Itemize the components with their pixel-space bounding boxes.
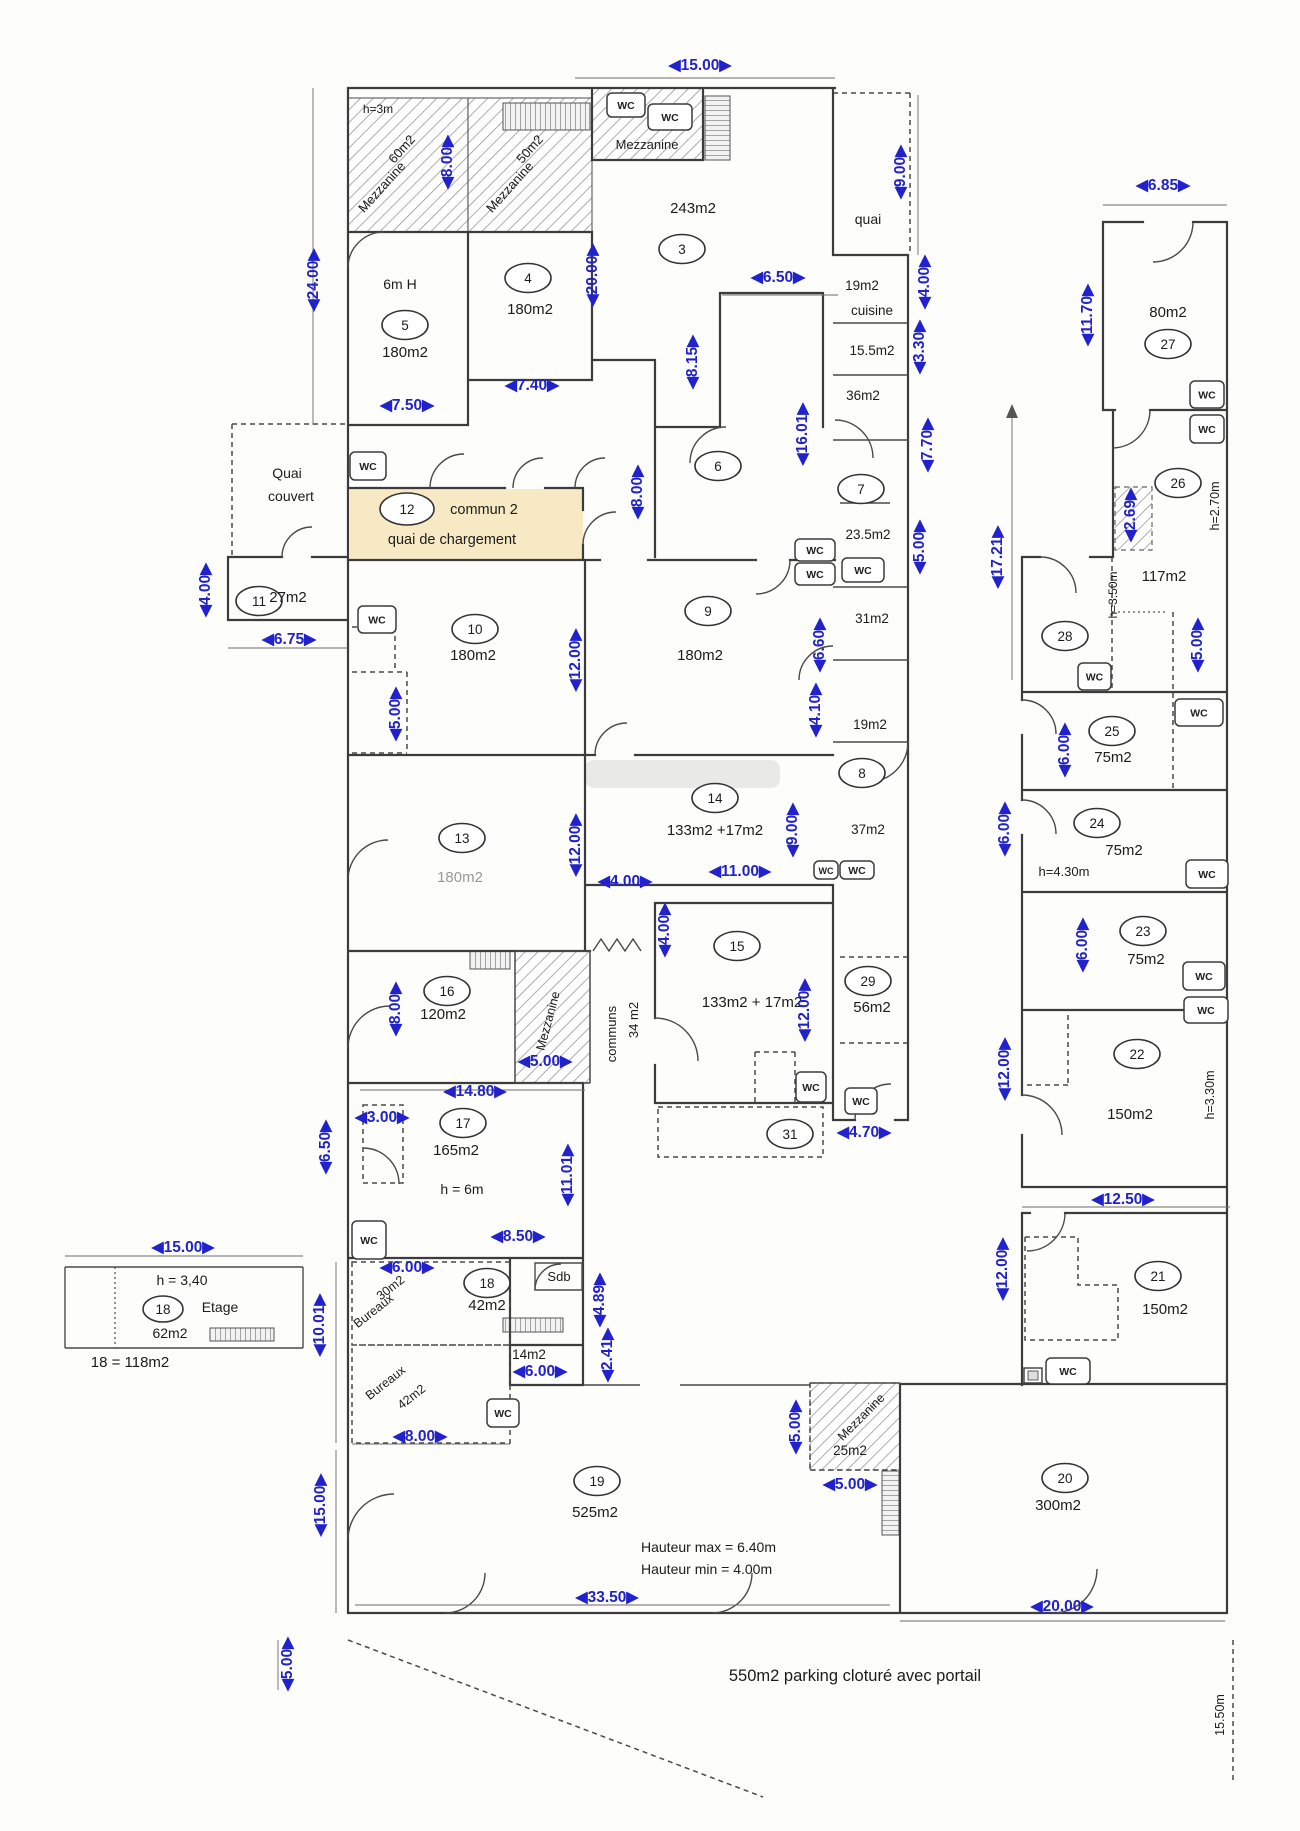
- dimension-label: ◀24.00▶: [305, 248, 322, 313]
- dimension-label: ◀5.00▶: [517, 1053, 573, 1070]
- dimension-label: ◀16.01▶: [794, 402, 811, 467]
- room-number: 9: [704, 604, 712, 619]
- wc-label: WC: [1059, 1366, 1077, 1378]
- plan-label: Hauteur max = 6.40m: [641, 1539, 776, 1555]
- dimension-label: ◀6.00▶: [1056, 722, 1073, 778]
- plan-label: 42m2: [395, 1382, 428, 1412]
- wc-label: WC: [852, 1096, 870, 1108]
- dimension-label: ◀6.50▶: [317, 1119, 334, 1175]
- arrow-head: [1006, 404, 1018, 418]
- plan-label: 56m2: [853, 999, 891, 1016]
- dimension-label: ◀3.00▶: [354, 1109, 410, 1126]
- dimension-label: ◀9.00▶: [784, 802, 801, 858]
- dimension-label: ◀12.00▶: [994, 1237, 1011, 1302]
- stairs-icon: [705, 96, 730, 160]
- plan-label: h=3.50m: [1106, 571, 1120, 618]
- stairs-icon: [470, 951, 510, 969]
- room-number: 14: [707, 791, 723, 806]
- room-number: 7: [857, 482, 865, 497]
- dimension-label: ◀6.00▶: [379, 1259, 435, 1276]
- plan-label: 37m2: [851, 822, 885, 837]
- dimension-label: ◀12.00▶: [996, 1037, 1013, 1102]
- plan-label: 15.50m: [1213, 1694, 1227, 1736]
- plan-label: commun 2: [450, 502, 518, 518]
- dimension-label: ◀8.00▶: [629, 464, 646, 520]
- dimension-label: ◀8.00▶: [392, 1428, 448, 1445]
- plan-label: Bureaux: [351, 1291, 397, 1331]
- room-number: 6: [714, 459, 722, 474]
- plan-label: communs: [604, 1005, 619, 1062]
- dimension-label: ◀12.00▶: [567, 813, 584, 878]
- dimension-label: ◀6.85▶: [1135, 177, 1191, 194]
- dimension-label: ◀6.50▶: [750, 269, 806, 286]
- plan-label: 18 = 118m2: [91, 1354, 170, 1371]
- wc-label: WC: [848, 865, 866, 877]
- room-number: 4: [524, 271, 532, 286]
- room-number: 18: [479, 1276, 494, 1291]
- plan-label: couvert: [268, 488, 314, 504]
- plan-label: h = 6m: [440, 1181, 483, 1197]
- wc-label: WC: [661, 112, 679, 124]
- plan-label: 165m2: [433, 1142, 479, 1159]
- dimension-label: ◀6.75▶: [261, 631, 317, 648]
- fixture-box-inner: [1028, 1371, 1038, 1380]
- dimension-label: ◀17.21▶: [989, 525, 1006, 590]
- plan-label: 133m2 +17m2: [667, 822, 763, 839]
- plan-label: 75m2: [1127, 951, 1165, 968]
- plan-label: 15.5m2: [849, 343, 894, 358]
- plan-label: 14m2: [512, 1347, 546, 1362]
- plan-label: h = 3,40: [157, 1272, 208, 1288]
- dimension-label: ◀4.89▶: [591, 1272, 608, 1328]
- wc-label: WC: [806, 569, 824, 581]
- plan-label: 19m2: [845, 278, 879, 293]
- room-number: 31: [782, 1127, 797, 1142]
- room-number: 18: [155, 1302, 170, 1317]
- plan-label: 180m2: [507, 301, 553, 318]
- dimension-label: ◀4.70▶: [836, 1124, 892, 1141]
- wc-label: WC: [1198, 424, 1216, 436]
- dimension-label: ◀11.00▶: [708, 863, 772, 880]
- dimension-label: ◀6.00▶: [996, 801, 1013, 857]
- plan-label: cuisine: [851, 303, 893, 318]
- dimension-label: ◀20.00▶: [584, 243, 601, 308]
- dimension-label: ◀5.00▶: [822, 1476, 878, 1493]
- plan-label: 27m2: [269, 589, 307, 606]
- plan-label: 243m2: [670, 200, 716, 217]
- plan-label: 62m2: [152, 1325, 187, 1341]
- walls-dotted: [115, 612, 1168, 1348]
- plan-label: 80m2: [1149, 304, 1187, 321]
- room-number: 17: [455, 1116, 470, 1131]
- dimension-label: ◀5.00▶: [387, 686, 404, 742]
- plan-label: h=3m: [363, 102, 393, 116]
- dimension-label: ◀4.00▶: [656, 902, 673, 958]
- room-number: 23: [1135, 924, 1150, 939]
- plan-label: 133m2 + 17m2: [702, 994, 802, 1011]
- wc-label: WC: [1197, 1005, 1215, 1017]
- plan-label: 23.5m2: [845, 527, 890, 542]
- plan-label: 31m2: [855, 611, 889, 626]
- wc-label: WC: [819, 866, 834, 876]
- dimension-label: ◀4.10▶: [807, 682, 824, 738]
- room-number: 22: [1129, 1047, 1144, 1062]
- room-number: 26: [1170, 476, 1185, 491]
- plan-label: 25m2: [833, 1443, 867, 1458]
- room-number: 10: [467, 622, 482, 637]
- wc-label: WC: [360, 1235, 378, 1247]
- room-number: 5: [401, 318, 409, 333]
- plan-label: 34 m2: [626, 1002, 641, 1038]
- plan-label: 150m2: [1107, 1106, 1153, 1123]
- door-arcs: [282, 222, 1193, 1613]
- room-number: 29: [860, 974, 875, 989]
- plan-label: Hauteur min = 4.00m: [641, 1561, 772, 1577]
- dimension-label: ◀2.41▶: [599, 1327, 616, 1383]
- dimension-label: ◀10.01▶: [311, 1293, 328, 1358]
- dimension-label: ◀5.00▶: [911, 519, 928, 575]
- dimension-label: ◀9.00▶: [892, 144, 909, 200]
- dimension-label: ◀6.00▶: [1074, 917, 1091, 973]
- room-number: 25: [1104, 724, 1119, 739]
- dimension-label: ◀8.15▶: [684, 334, 701, 390]
- room-number: 24: [1089, 816, 1105, 831]
- dimension-label: ◀8.50▶: [490, 1228, 546, 1245]
- dimension-label: ◀12.00▶: [567, 628, 584, 693]
- dimension-label: ◀7.70▶: [919, 417, 936, 473]
- plan-label: 525m2: [572, 1504, 618, 1521]
- stairs-icon: [210, 1328, 274, 1341]
- dimension-label: ◀4.00▶: [597, 873, 653, 890]
- dimension-label: ◀15.00▶: [151, 1239, 216, 1256]
- wc-label: WC: [806, 545, 824, 557]
- plan-label: 42m2: [468, 1297, 506, 1314]
- dimension-label: ◀12.00▶: [796, 978, 813, 1043]
- floor-plan-page: WCWCWCWCWCWCWCWCWCWCWCWCWCWCWCWCWCWCWCWC…: [0, 0, 1300, 1831]
- wc-label: WC: [359, 461, 377, 473]
- plan-label: Etage: [202, 1299, 239, 1315]
- dimension-label: ◀20.00▶: [1030, 1598, 1095, 1615]
- dimension-label: ◀14.80▶: [443, 1083, 508, 1100]
- dimension-label: ◀5.00▶: [787, 1399, 804, 1455]
- plan-label: 180m2: [437, 869, 483, 886]
- room-number: 28: [1057, 629, 1072, 644]
- plan-label: 75m2: [1094, 749, 1132, 766]
- dimension-label: ◀7.50▶: [379, 397, 435, 414]
- dimension-label: ◀15.00▶: [312, 1473, 329, 1538]
- walls-partitions: [65, 323, 908, 1385]
- dimension-label: ◀8.00▶: [387, 981, 404, 1037]
- plan-label: Quai: [272, 465, 302, 481]
- wc-label: WC: [494, 1408, 512, 1420]
- plan-label: 75m2: [1105, 842, 1143, 859]
- dimension-label: ◀3.30▶: [911, 319, 928, 375]
- plan-label: 150m2: [1142, 1301, 1188, 1318]
- wc-label: WC: [1198, 869, 1216, 881]
- wc-label: WC: [802, 1082, 820, 1094]
- plan-label: h=3.30m: [1203, 1071, 1217, 1120]
- room-number: 20: [1057, 1471, 1072, 1486]
- dimension-label: ◀12.50▶: [1091, 1191, 1156, 1208]
- stairs-icon: [503, 103, 590, 130]
- dimension-label: ◀8.00▶: [439, 134, 456, 190]
- dimension-label: ◀4.00▶: [197, 562, 214, 618]
- stairs-icon: [503, 1318, 563, 1332]
- dimension-label: ◀6.60▶: [811, 617, 828, 673]
- wc-label: WC: [854, 565, 872, 577]
- room-number: 15: [729, 939, 744, 954]
- dimension-label: ◀11.70▶: [1079, 283, 1096, 347]
- scan-smudge: [585, 760, 780, 788]
- room-number: 12: [399, 502, 414, 517]
- dimension-label: ◀6.00▶: [512, 1363, 568, 1380]
- room-number: 8: [858, 766, 866, 781]
- room-number: 21: [1150, 1269, 1165, 1284]
- dimension-label: ◀5.00▶: [279, 1636, 296, 1692]
- wc-label: WC: [1198, 390, 1216, 402]
- plan-label: Sdb: [547, 1269, 570, 1284]
- room-number: 16: [439, 984, 454, 999]
- wc-label: WC: [1190, 708, 1208, 720]
- plan-label: 180m2: [450, 647, 496, 664]
- plan-label: 36m2: [846, 388, 880, 403]
- room-number: 19: [589, 1474, 604, 1489]
- dimension-label: ◀15.00▶: [668, 57, 733, 74]
- plan-label: 550m2 parking cloturé avec portail: [729, 1667, 981, 1685]
- plan-label: 300m2: [1035, 1497, 1081, 1514]
- floor-plan-drawing: WCWCWCWCWCWCWCWCWCWCWCWCWCWCWCWCWCWCWCWC…: [0, 0, 1300, 1831]
- dimension-label: ◀5.00▶: [1189, 617, 1206, 673]
- room-number: 11: [252, 594, 266, 609]
- wc-label: WC: [1086, 672, 1104, 684]
- room-number: 3: [678, 242, 686, 257]
- plan-label: 19m2: [853, 717, 887, 732]
- plan-label: 180m2: [677, 647, 723, 664]
- wc-label: WC: [617, 100, 635, 112]
- room-number: 27: [1160, 337, 1175, 352]
- dimension-label: ◀7.40▶: [504, 377, 560, 394]
- wc-label: WC: [1195, 971, 1213, 983]
- room-number: 13: [454, 831, 469, 846]
- plan-label: 6m H: [383, 276, 416, 292]
- plan-label: quai de chargement: [388, 532, 516, 548]
- dimension-label: ◀11.01▶: [559, 1143, 576, 1207]
- plan-label: quai: [855, 211, 881, 227]
- dimension-label: ◀4.00▶: [916, 254, 933, 310]
- dimension-label: ◀2.69▶: [1122, 487, 1139, 543]
- plan-label: 120m2: [420, 1006, 466, 1023]
- plan-label: Mezzanine: [616, 137, 679, 152]
- stairs-icon: [882, 1471, 899, 1535]
- dimension-label: ◀33.50▶: [575, 1589, 640, 1606]
- plan-label: h=4.30m: [1039, 864, 1090, 879]
- wc-label: WC: [368, 615, 386, 627]
- plan-label: 180m2: [382, 344, 428, 361]
- plan-label: h=2.70m: [1208, 482, 1222, 531]
- plan-label: 117m2: [1142, 568, 1187, 585]
